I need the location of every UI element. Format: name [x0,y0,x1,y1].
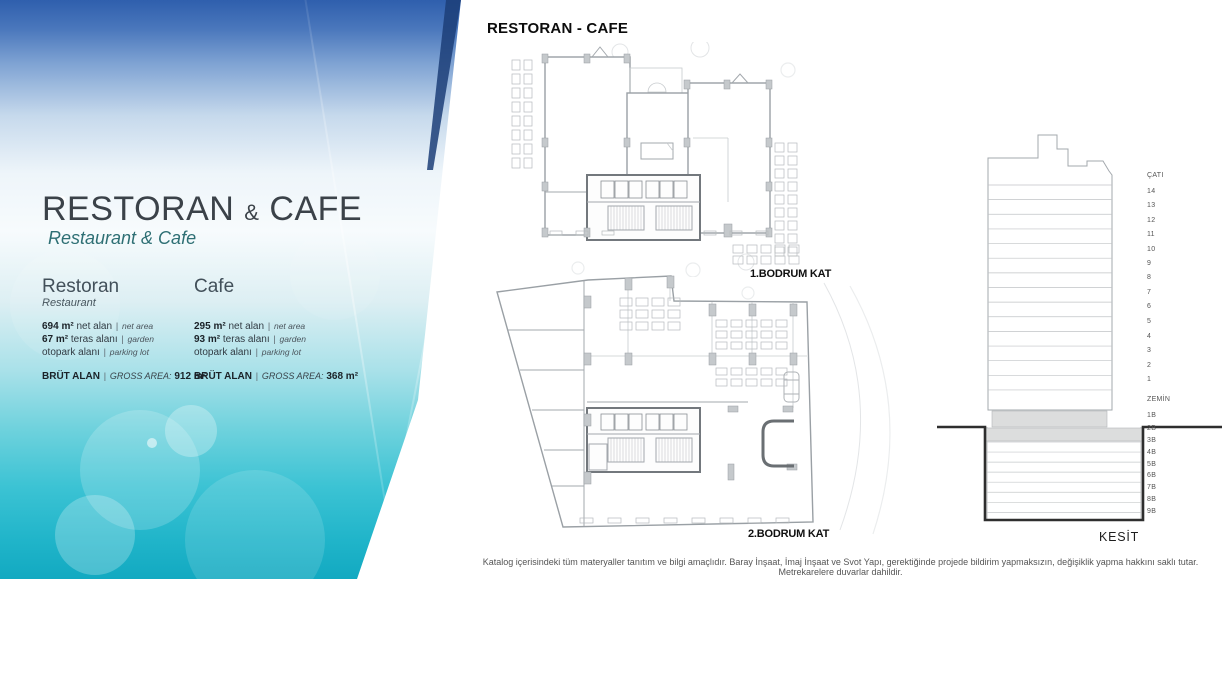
tables-left [512,60,532,168]
page-subtitle: Restaurant & Cafe [48,228,196,249]
cafe-gross-area: BRÜT ALAN | GROSS AREA: 368 m² [194,371,344,382]
bokeh-circle [165,405,217,457]
gross-label-en: GROSS AREA: [262,371,324,381]
floor-label: 3B [1147,437,1156,445]
cafe-info-column: Cafe 295 m² net alan | net area 93 m² te… [194,277,344,382]
separator: | [103,371,107,381]
floor-label: ZEMİN [1147,396,1170,404]
parking-label-en: parking lot [262,347,301,357]
terrace-label-en: garden [280,334,306,344]
net-area-value: 295 m² [194,321,226,332]
parking-label-tr: otopark alanı [194,347,252,358]
separator: | [255,371,259,381]
section-floor-labels: ÇATI1413121110987654321ZEMİN1B2B3B4B5B6B… [1147,0,1187,579]
info-row: 694 m² net alan | net area [42,320,192,333]
floor-label: 2B [1147,425,1156,433]
floor-plan-1-drawing [488,42,908,277]
terrace-label-en: garden [128,334,154,344]
floor-label: 13 [1147,202,1155,210]
info-row: 93 m² teras alanı | garden [194,333,344,346]
separator: | [255,347,259,357]
separator: | [115,321,119,331]
floor-label: 7B [1147,484,1156,492]
restoran-info-column: Restoran Restaurant 694 m² net alan | ne… [42,277,192,382]
page-title: RESTORAN & CAFE [42,190,362,229]
gross-label-tr: BRÜT ALAN [194,371,252,382]
floor-plan-2-drawing [488,268,968,538]
floor-label: ÇATI [1147,172,1164,180]
restoran-heading: Restoran [42,277,192,297]
title-main: RESTORAN [42,190,234,228]
floor-label: 6B [1147,472,1156,480]
floor-label: 8B [1147,496,1156,504]
terrace-label-tr: teras alanı [71,334,118,345]
floor-label: 5 [1147,318,1151,326]
floor-label: 1B [1147,412,1156,420]
cafe-heading: Cafe [194,277,344,297]
floor-label: 6 [1147,303,1151,311]
left-panel: RESTORAN & CAFE Restaurant & Cafe Restor… [0,0,470,579]
floor-label: 10 [1147,246,1155,254]
info-row: 67 m² teras alanı | garden [42,333,192,346]
floor-label: 14 [1147,188,1155,196]
basement-floor-lines [987,442,1141,512]
bokeh-circle [185,470,325,610]
panel-navy-edge [0,0,470,200]
info-row: otopark alanı | parking lot [194,346,344,359]
floor-label: 1 [1147,376,1151,384]
bokeh-dot [147,438,157,448]
separator: | [272,334,276,344]
bokeh-circle [55,495,135,575]
floor-label: 11 [1147,231,1155,239]
net-area-label-tr: net alan [76,321,112,332]
title-end: CAFE [269,190,362,228]
disclaimer-text: Katalog içerisindeki tüm materyaller tan… [463,557,1218,577]
tower-floor-lines [988,185,1112,390]
plan2-label: 2.BODRUM KAT [748,528,829,540]
kesit-label: KESİT [1099,530,1139,544]
tables-right [775,143,797,256]
gross-label-tr: BRÜT ALAN [42,371,100,382]
section-title: RESTORAN - CAFE [487,20,628,37]
terrace-label-tr: teras alanı [223,334,270,345]
floor-label: 9 [1147,260,1151,268]
restoran-heading-en: Restaurant [42,297,192,310]
floor-label: 7 [1147,289,1151,297]
info-row: 295 m² net alan | net area [194,320,344,333]
cafe-info-rows: 295 m² net alan | net area 93 m² teras a… [194,320,344,359]
net-area-label-en: net area [122,321,153,331]
net-area-label-tr: net alan [228,321,264,332]
restoran-gross-area: BRÜT ALAN | GROSS AREA: 912 m² [42,371,192,382]
floor-label: 2 [1147,362,1151,370]
brochure-page: RESTORAN & CAFE Restaurant & Cafe Restor… [0,0,1224,579]
separator: | [267,321,271,331]
cafe-heading-en [194,297,344,310]
gross-label-en: GROSS AREA: [110,371,172,381]
terrace-value: 93 m² [194,334,220,345]
separator: | [103,347,107,357]
net-area-label-en: net area [274,321,305,331]
floor-label: 9B [1147,508,1156,516]
floor-label: 8 [1147,274,1151,282]
parking-label-tr: otopark alanı [42,347,100,358]
title-ampersand: & [244,200,259,225]
floor-label: 3 [1147,347,1151,355]
floor-label: 5B [1147,461,1156,469]
terrace-value: 67 m² [42,334,68,345]
separator: | [120,334,124,344]
parking-label-en: parking lot [110,347,149,357]
gross-value: 368 m² [326,371,358,382]
floor-label: 4 [1147,333,1151,341]
floor-label: 4B [1147,449,1156,457]
floor-label: 12 [1147,217,1155,225]
restoran-info-rows: 694 m² net alan | net area 67 m² teras a… [42,320,192,359]
info-row: otopark alanı | parking lot [42,346,192,359]
net-area-value: 694 m² [42,321,74,332]
